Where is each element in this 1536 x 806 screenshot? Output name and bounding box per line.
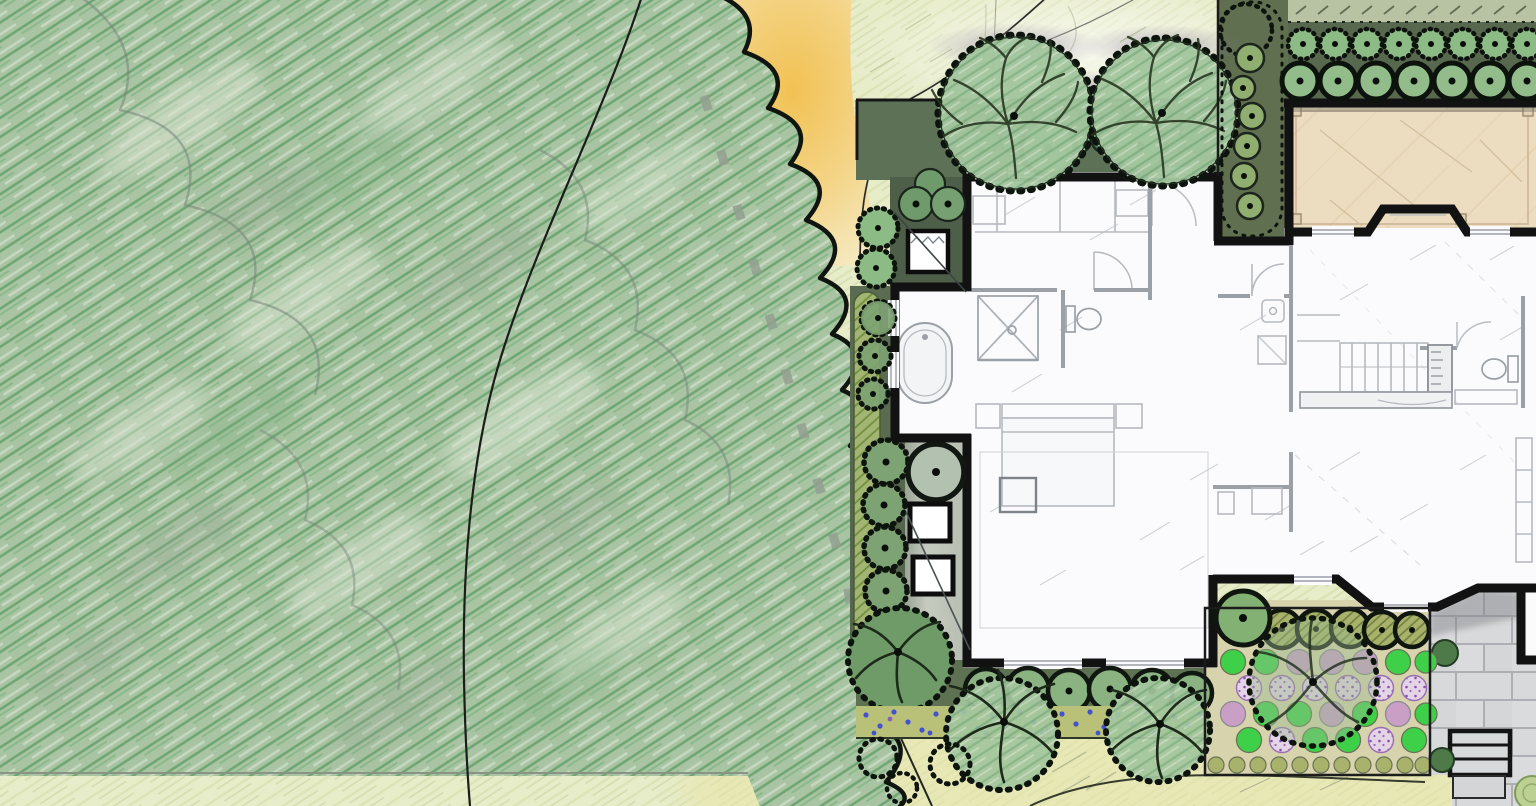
site-plan-drawing	[0, 0, 1536, 806]
garden-steps	[1450, 731, 1510, 798]
step-landing	[1453, 776, 1505, 798]
white-planter-box	[913, 557, 953, 594]
bathtub	[898, 323, 952, 403]
tree-canopy-mass	[0, 0, 905, 806]
landscape-plan-canvas	[0, 0, 1536, 806]
accent-shrub	[1430, 748, 1454, 772]
corner-tree	[1216, 591, 1270, 645]
shade-tree	[1106, 678, 1210, 782]
pantry	[1428, 345, 1452, 392]
overlay-tree	[1249, 618, 1377, 746]
kitchen-island	[1300, 392, 1452, 408]
pad-tree	[908, 444, 964, 500]
dark-garden-tree	[848, 608, 952, 712]
